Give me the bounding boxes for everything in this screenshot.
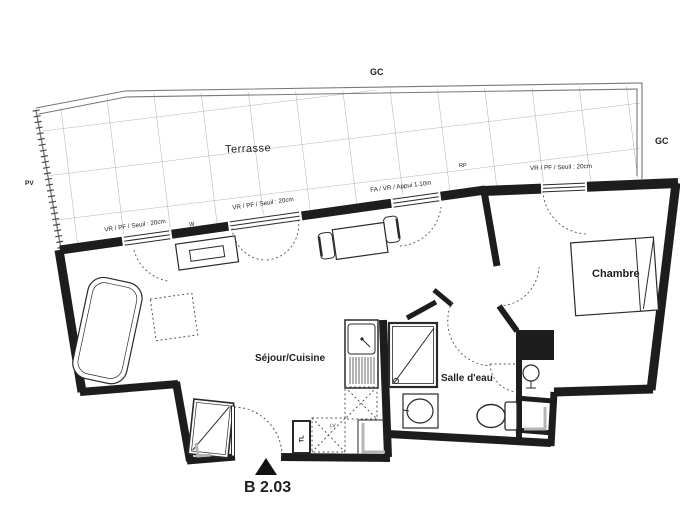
- entry-niche-shelf: [363, 423, 385, 452]
- shower: [389, 323, 437, 387]
- bedroom-label: Chambre: [592, 268, 640, 280]
- appliance-space-2: [312, 418, 345, 452]
- pv-label: PV: [25, 180, 34, 187]
- rp-label: RP: [459, 163, 467, 169]
- shelf-niche: [524, 407, 545, 429]
- appliance-space-1: [345, 387, 377, 419]
- entrance-marker-icon: [255, 458, 277, 475]
- floor-plan: TL Terrasse GC: [0, 0, 680, 510]
- bottom-wall: [281, 457, 390, 458]
- tl-label: TL: [300, 435, 306, 443]
- window-bedroom-swing: [543, 191, 588, 234]
- wc-block-mass: [516, 330, 554, 360]
- heater-closet-door-swing: [490, 364, 518, 392]
- bathroom-door-swing: [448, 302, 490, 366]
- window-bedroom: [541, 180, 587, 195]
- kitchen-bathroom-wall: [383, 320, 388, 457]
- entry-door-leaf: [232, 406, 235, 456]
- kitchen-sink: [345, 320, 378, 388]
- bedroom-bottom-wall: [554, 389, 653, 392]
- bathroom-label: Salle d'eau: [441, 373, 493, 384]
- side-table: [150, 293, 197, 340]
- kitchen-counter: [175, 236, 238, 270]
- living-room-label: Séjour/Cuisine: [255, 353, 325, 364]
- toilet: [477, 402, 517, 430]
- window-left-swing: [134, 250, 168, 281]
- washbasin: [403, 394, 438, 428]
- bathroom-partition: [434, 290, 452, 305]
- bathroom-partition-2: [407, 302, 436, 318]
- terrace-label: Terrasse: [225, 142, 272, 156]
- unit-number-label: B 2.03: [244, 479, 291, 496]
- appliance-label: LV: [330, 423, 337, 429]
- bathroom-bottom-wall: [388, 434, 551, 443]
- hinge-mark: [517, 390, 522, 396]
- wc-block-divider: [516, 398, 553, 401]
- bedroom-door-swing: [499, 267, 539, 306]
- floor-plan-drawing: TL Terrasse GC: [0, 0, 680, 510]
- gc-right-label: GC: [655, 136, 669, 146]
- entry-door-swing: [234, 407, 282, 456]
- sofa: [70, 275, 145, 387]
- dining-table: [317, 216, 402, 262]
- window-bay-swing: [400, 207, 441, 246]
- bedroom-left-wall-lower: [499, 306, 517, 331]
- lower-left-wall: [80, 384, 178, 392]
- bedroom-left-wall-upper: [484, 191, 497, 266]
- entry-closet: [188, 399, 234, 458]
- water-heater-icon: [523, 365, 539, 381]
- electrical-box: TL: [293, 421, 310, 453]
- gc-top-label: GC: [370, 67, 384, 77]
